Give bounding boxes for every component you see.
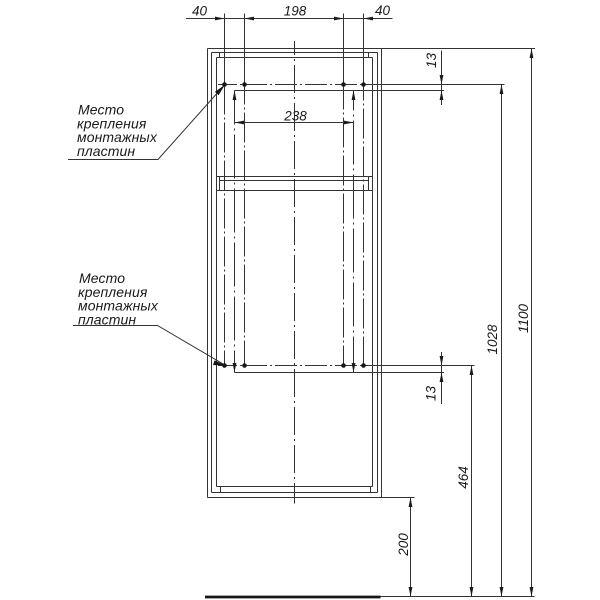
svg-text:13: 13 — [424, 53, 439, 69]
svg-text:200: 200 — [396, 533, 411, 557]
svg-text:40: 40 — [192, 4, 208, 19]
svg-text:464: 464 — [456, 466, 471, 489]
svg-text:1100: 1100 — [516, 303, 531, 333]
svg-text:40: 40 — [375, 3, 391, 18]
svg-text:1028: 1028 — [485, 324, 500, 355]
svg-text:13: 13 — [424, 386, 439, 402]
svg-text:198: 198 — [284, 4, 307, 19]
svg-text:пластин: пластин — [78, 311, 136, 327]
svg-text:238: 238 — [283, 109, 307, 124]
svg-text:пластин: пластин — [77, 143, 135, 159]
